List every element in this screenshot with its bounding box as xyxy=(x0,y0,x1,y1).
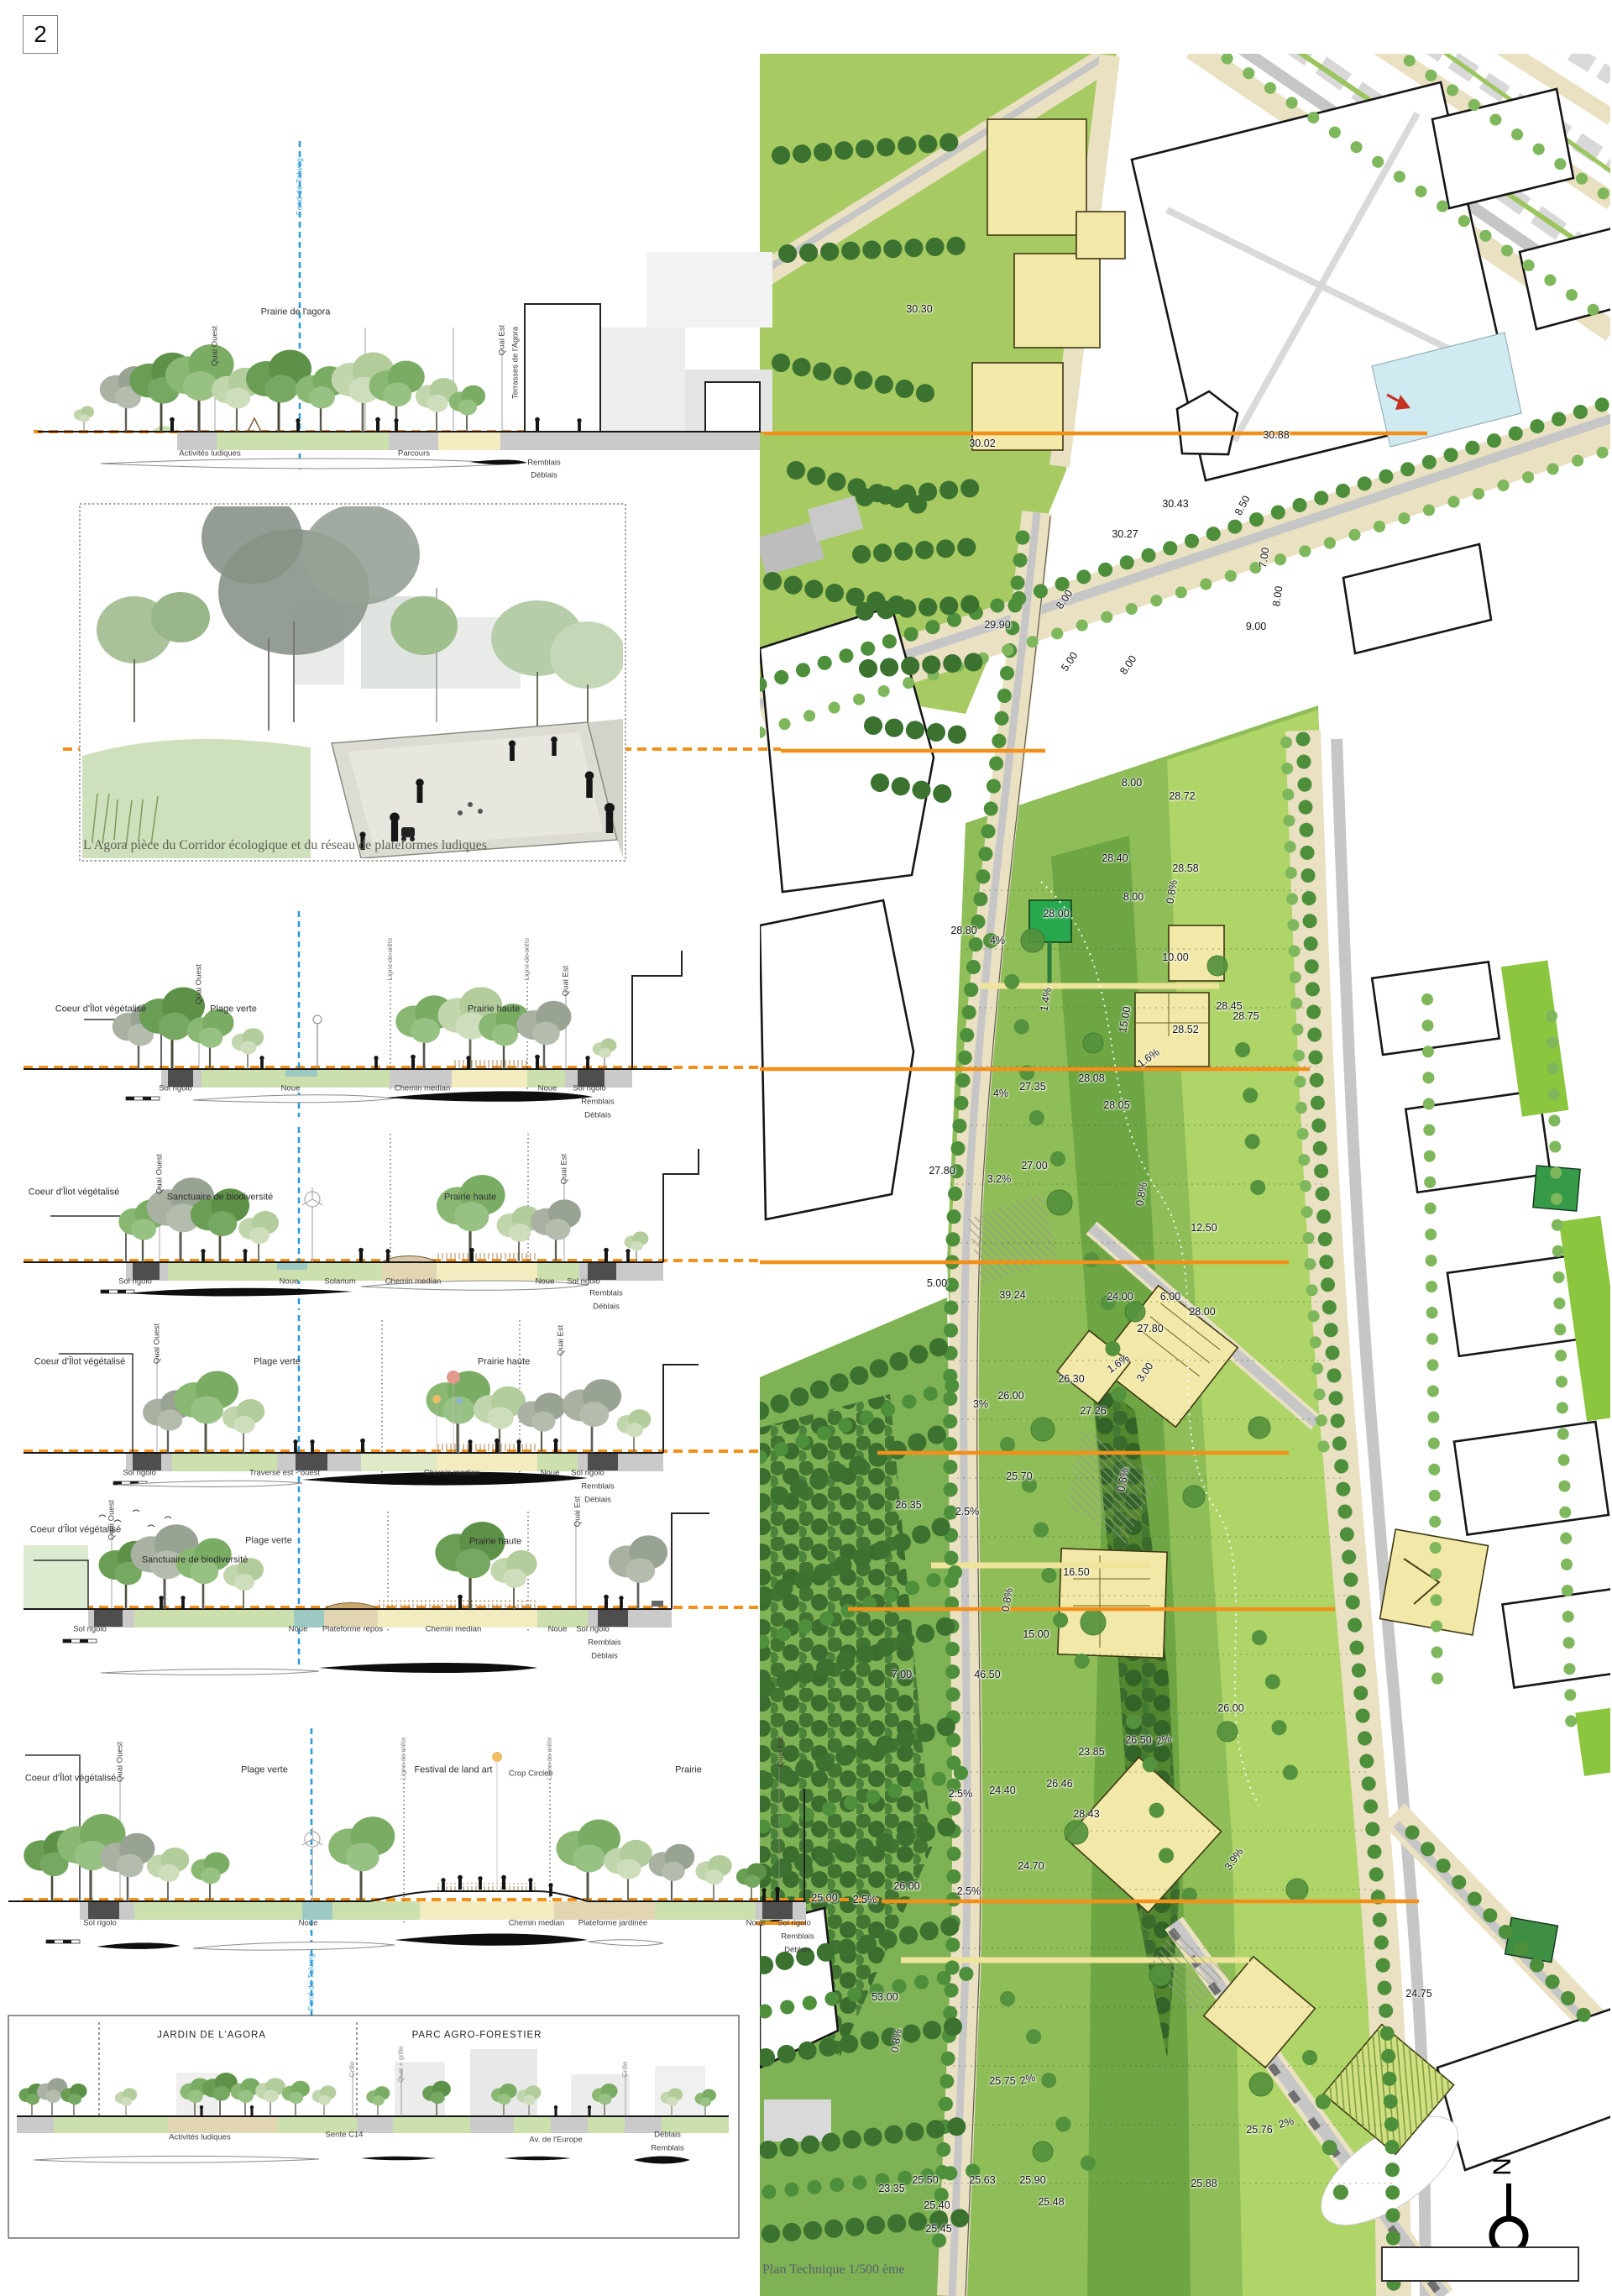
plan-elevation-label: 28.40 xyxy=(1102,853,1128,864)
section-label: Sol rigolo xyxy=(159,1084,192,1093)
section-label: Sanctuaire de biodiversité xyxy=(142,1556,249,1565)
section-label: Quai Ouest xyxy=(211,326,219,366)
panel-label: Grille xyxy=(349,2062,356,2078)
section-label: Plage verte xyxy=(210,1005,257,1014)
section-label: Prairie haute xyxy=(468,1005,520,1014)
section-label: Plage verte xyxy=(254,1358,301,1367)
section-label: Noue xyxy=(746,1919,766,1927)
section-label: Noue xyxy=(536,1277,555,1286)
plan-elevation-label: 28.72 xyxy=(1169,791,1195,802)
section-label: Plage verte xyxy=(241,1766,288,1775)
panel-label: Sente C14 xyxy=(326,2131,364,2139)
cross-section-5 xyxy=(24,1510,709,1675)
section-label: Quai Est xyxy=(777,1737,785,1767)
section-label: Noue xyxy=(289,1625,308,1633)
plan-elevation-label: 24.70 xyxy=(1018,1861,1044,1872)
section-label: Solarium xyxy=(324,1277,356,1286)
section-label: Parcours xyxy=(398,449,430,458)
plan-elevation-label: 27.80 xyxy=(1137,1324,1163,1334)
section-label: Terrasses de l'Agora xyxy=(511,327,520,399)
section-label: Quai Ouest xyxy=(195,964,203,1004)
plan-elevation-label: 26.00 xyxy=(997,1391,1023,1402)
plan-elevation-label: 8.00 xyxy=(1122,778,1142,789)
plan-elevation-label: 30.30 xyxy=(906,304,932,315)
section-label: Prairie xyxy=(675,1766,702,1775)
plan-elevation-label: 39.24 xyxy=(999,1290,1025,1301)
plan-elevation-label: 8.00 xyxy=(1271,585,1285,607)
page-number: 2 xyxy=(23,15,58,54)
panel-label: Activités ludiques xyxy=(169,2133,230,2141)
section-label: Chemin median xyxy=(385,1277,442,1286)
section-label: Quai Ouest xyxy=(153,1324,161,1364)
section-label: Activités ludiques xyxy=(179,449,240,458)
plan-elevation-label: 30.02 xyxy=(969,438,995,449)
section-label: Déblais xyxy=(784,1946,811,1954)
plan-elevation-label: 4% xyxy=(993,1088,1008,1099)
section-label: Prairie haute xyxy=(478,1358,530,1367)
section-label: Quai Est xyxy=(560,1154,568,1184)
north-label: N xyxy=(1490,2157,1515,2176)
plan-elevation-label: 25.88 xyxy=(1191,2178,1217,2189)
plan-elevation-label: 25.50 xyxy=(912,2175,938,2186)
plan-elevation-label: 29.90 xyxy=(984,620,1010,631)
section-label: Quai Ouest xyxy=(155,1154,164,1194)
plan-elevation-label: 28.00 xyxy=(1043,909,1069,920)
section-label: Déblais xyxy=(584,1111,611,1119)
plan-caption: Plan Technique 1/500 ème xyxy=(762,2262,905,2278)
section-label: Quai Est xyxy=(498,325,506,355)
panel-label: Déblais xyxy=(654,2131,681,2139)
section-label: Plateforme jardinée xyxy=(578,1919,647,1927)
presentation-board: 2 L'Agora pièce du Corridor écologique e… xyxy=(0,0,1612,2296)
plan-elevation-label: 53.00 xyxy=(871,1992,898,2003)
section-label: Plage verte xyxy=(245,1537,292,1546)
plan-elevation-label: 30.27 xyxy=(1112,529,1138,540)
plan-elevation-label: 8.00 xyxy=(1123,892,1144,903)
section-label: Noue xyxy=(548,1625,568,1633)
section-label: Noue xyxy=(281,1084,301,1093)
plan-elevation-label: 2.5% xyxy=(853,1895,877,1905)
section-label: Quai Est xyxy=(573,1497,582,1527)
section-label: Coeur d'Îlot végétalisé xyxy=(25,1774,117,1784)
panel-label: Quai + grille xyxy=(398,2047,405,2083)
section-label: Déblais xyxy=(593,1303,620,1311)
cross-section-3 xyxy=(24,1134,699,1297)
plan-elevation-label: 25.90 xyxy=(1019,2175,1045,2186)
section-label: Ligne de crête xyxy=(524,938,531,981)
section-label: Noue xyxy=(538,1084,557,1093)
section-label: Coeur d'Îlot végétalisé xyxy=(34,1358,126,1367)
section-label: Remblais xyxy=(781,1932,814,1941)
plan-elevation-label: 25.45 xyxy=(925,2224,951,2235)
plan-elevation-label: 12.50 xyxy=(1191,1223,1217,1234)
section-label: Fond de Talweg xyxy=(308,1953,316,2010)
plan-elevation-label: 28.58 xyxy=(1172,863,1198,874)
cross-section-2 xyxy=(24,945,682,1103)
plan-elevation-label: 26.00 xyxy=(893,1881,919,1892)
section-label: Sol rigolo xyxy=(123,1469,156,1477)
plan-elevation-label: 25.76 xyxy=(1246,2125,1272,2136)
site-plan xyxy=(756,0,1612,2296)
cross-section-6 xyxy=(8,1745,806,1950)
section-label: Chemin median xyxy=(424,1469,480,1477)
section-label: Ligne de crête xyxy=(547,1738,553,1780)
panel-label: Av. de l'Europe xyxy=(529,2136,582,2144)
plan-elevation-label: 25.48 xyxy=(1038,2197,1064,2208)
section-label: Quai Est xyxy=(562,966,570,996)
plan-elevation-label: 27.35 xyxy=(1019,1082,1045,1093)
section-label: Remblais xyxy=(527,459,561,467)
plan-elevation-label: 30.88 xyxy=(1263,430,1289,441)
plan-elevation-label: 7.00 xyxy=(892,1670,912,1680)
section-label: Remblais xyxy=(581,1098,615,1106)
section-label: Chemin median xyxy=(426,1625,482,1633)
plan-elevation-label: 3% xyxy=(973,1399,988,1410)
plan-elevation-label: 28.52 xyxy=(1172,1025,1198,1035)
plan-elevation-label: 25.63 xyxy=(969,2175,995,2186)
section-label: Prairie de l'agora xyxy=(261,308,331,317)
plan-elevation-label: 24.75 xyxy=(1405,1989,1431,2000)
plan-elevation-label: 27.26 xyxy=(1080,1406,1106,1417)
section-label: Quai Est xyxy=(557,1325,565,1355)
panel-label: PARC AGRO-FORESTIER xyxy=(412,2031,542,2041)
plan-elevation-label: 7.00 xyxy=(1258,547,1271,569)
section-label: Plateforme repos xyxy=(322,1625,383,1633)
section-label: Sol rigolo xyxy=(73,1625,107,1633)
section-label: Sol rigolo xyxy=(573,1084,606,1093)
plan-elevation-label: 30.43 xyxy=(1162,499,1188,510)
section-label: Sol rigolo xyxy=(83,1919,117,1927)
panel-label: Grille xyxy=(622,2062,629,2078)
plan-elevation-label: 25.75 xyxy=(989,2076,1015,2087)
cross-section-1 xyxy=(38,252,772,469)
plan-elevation-label: 28.05 xyxy=(1103,1100,1129,1111)
plan-elevation-label: 2.5% xyxy=(957,1886,981,1897)
plan-elevation-label: 28.75 xyxy=(1233,1011,1259,1022)
section-label: Sol rigolo xyxy=(118,1277,152,1286)
section-label: Quai Ouest xyxy=(107,1500,116,1540)
plan-elevation-label: 26.50 xyxy=(1125,1735,1151,1746)
section-label: Sol rigolo xyxy=(571,1469,604,1477)
plan-elevation-label: 25.40 xyxy=(924,2200,950,2211)
section-label: Remblais xyxy=(588,1638,621,1647)
plan-elevation-label: 28.45 xyxy=(1216,1001,1242,1012)
plan-elevation-label: 25.00 xyxy=(811,1893,837,1904)
plan-elevation-label: 26.00 xyxy=(1217,1703,1243,1714)
section-label: Sol rigolo xyxy=(567,1277,600,1286)
section-label: Remblais xyxy=(589,1289,623,1297)
plan-elevation-label: 3.2% xyxy=(987,1174,1012,1185)
plan-elevation-label: 26.30 xyxy=(1058,1374,1084,1385)
plan-elevation-label: 9.00 xyxy=(1246,621,1266,632)
plan-elevation-label: 2.5% xyxy=(955,1507,980,1518)
perspective-caption: L'Agora pièce du Corridor écologique et … xyxy=(83,838,487,853)
section-label: Déblais xyxy=(584,1496,611,1504)
plan-elevation-label: 23.85 xyxy=(1078,1747,1104,1758)
plan-elevation-label: 2.5% xyxy=(949,1789,973,1800)
section-label: Chemin median xyxy=(395,1084,451,1093)
plan-elevation-label: 28.43 xyxy=(1073,1809,1099,1820)
panel-label: JARDIN DE L'AGORA xyxy=(157,2031,266,2041)
section-label: Prairie haute xyxy=(444,1193,496,1203)
section-label: Ligne de crête xyxy=(387,938,394,981)
section-label: Festival de land art xyxy=(415,1766,493,1775)
plan-elevation-label: 15.00 xyxy=(1023,1629,1049,1640)
perspective-rendering xyxy=(80,491,625,861)
plan-elevation-label: 26.35 xyxy=(895,1500,921,1511)
section-label: Noue xyxy=(299,1919,318,1927)
panel-label: Remblais xyxy=(651,2144,684,2152)
plan-elevation-label: 4% xyxy=(990,936,1005,946)
title-block xyxy=(1382,2247,1578,2281)
plan-elevation-label: 27.80 xyxy=(929,1166,955,1177)
section-label: Quai Ouest xyxy=(116,1742,124,1782)
section-label: Prairie haute xyxy=(469,1538,521,1547)
cross-section-4 xyxy=(24,1320,699,1486)
section-label: Noue xyxy=(280,1277,299,1286)
plan-elevation-label: 28.08 xyxy=(1078,1073,1104,1084)
plan-elevation-label: 10.00 xyxy=(1162,952,1188,963)
plan-elevation-label: 26.46 xyxy=(1046,1779,1072,1790)
section-label: Noue xyxy=(541,1469,560,1477)
section-label: Traverse est - ouest xyxy=(249,1469,320,1477)
plan-elevation-label: 24.00 xyxy=(1107,1292,1133,1303)
section-label: Remblais xyxy=(581,1482,615,1491)
plan-elevation-label: 28.00 xyxy=(1189,1307,1215,1318)
bottom-panel-section xyxy=(8,2016,739,2238)
plan-elevation-label: 23.35 xyxy=(878,2183,904,2194)
section-label: Coeur d'Îlot végétalisé xyxy=(55,1005,147,1014)
section-label: Ligne de crête xyxy=(400,1738,407,1780)
section-label: Fond de Talweg xyxy=(296,158,304,215)
plan-elevation-label: 27.00 xyxy=(1021,1161,1047,1172)
section-label: Chemin median xyxy=(509,1919,565,1927)
plan-elevation-label: 28.80 xyxy=(950,925,976,936)
plan-elevation-label: 25.70 xyxy=(1006,1471,1032,1482)
plan-elevation-label: 6.00 xyxy=(1160,1292,1180,1303)
plan-elevation-label: 24.40 xyxy=(989,1785,1015,1796)
plan-elevation-label: 16.50 xyxy=(1063,1567,1089,1578)
section-label: Sanctuaire de biodiversité xyxy=(167,1193,274,1203)
section-label: Sol rigolo xyxy=(576,1625,610,1633)
plan-elevation-label: 5.00 xyxy=(927,1278,947,1289)
section-label: Sol rigolo xyxy=(777,1919,811,1927)
plan-elevation-label: 46.50 xyxy=(974,1670,1000,1680)
section-label: Déblais xyxy=(591,1652,618,1660)
section-label: Coeur d'Îlot végétalisé xyxy=(29,1188,120,1198)
section-label: Déblais xyxy=(531,471,557,480)
